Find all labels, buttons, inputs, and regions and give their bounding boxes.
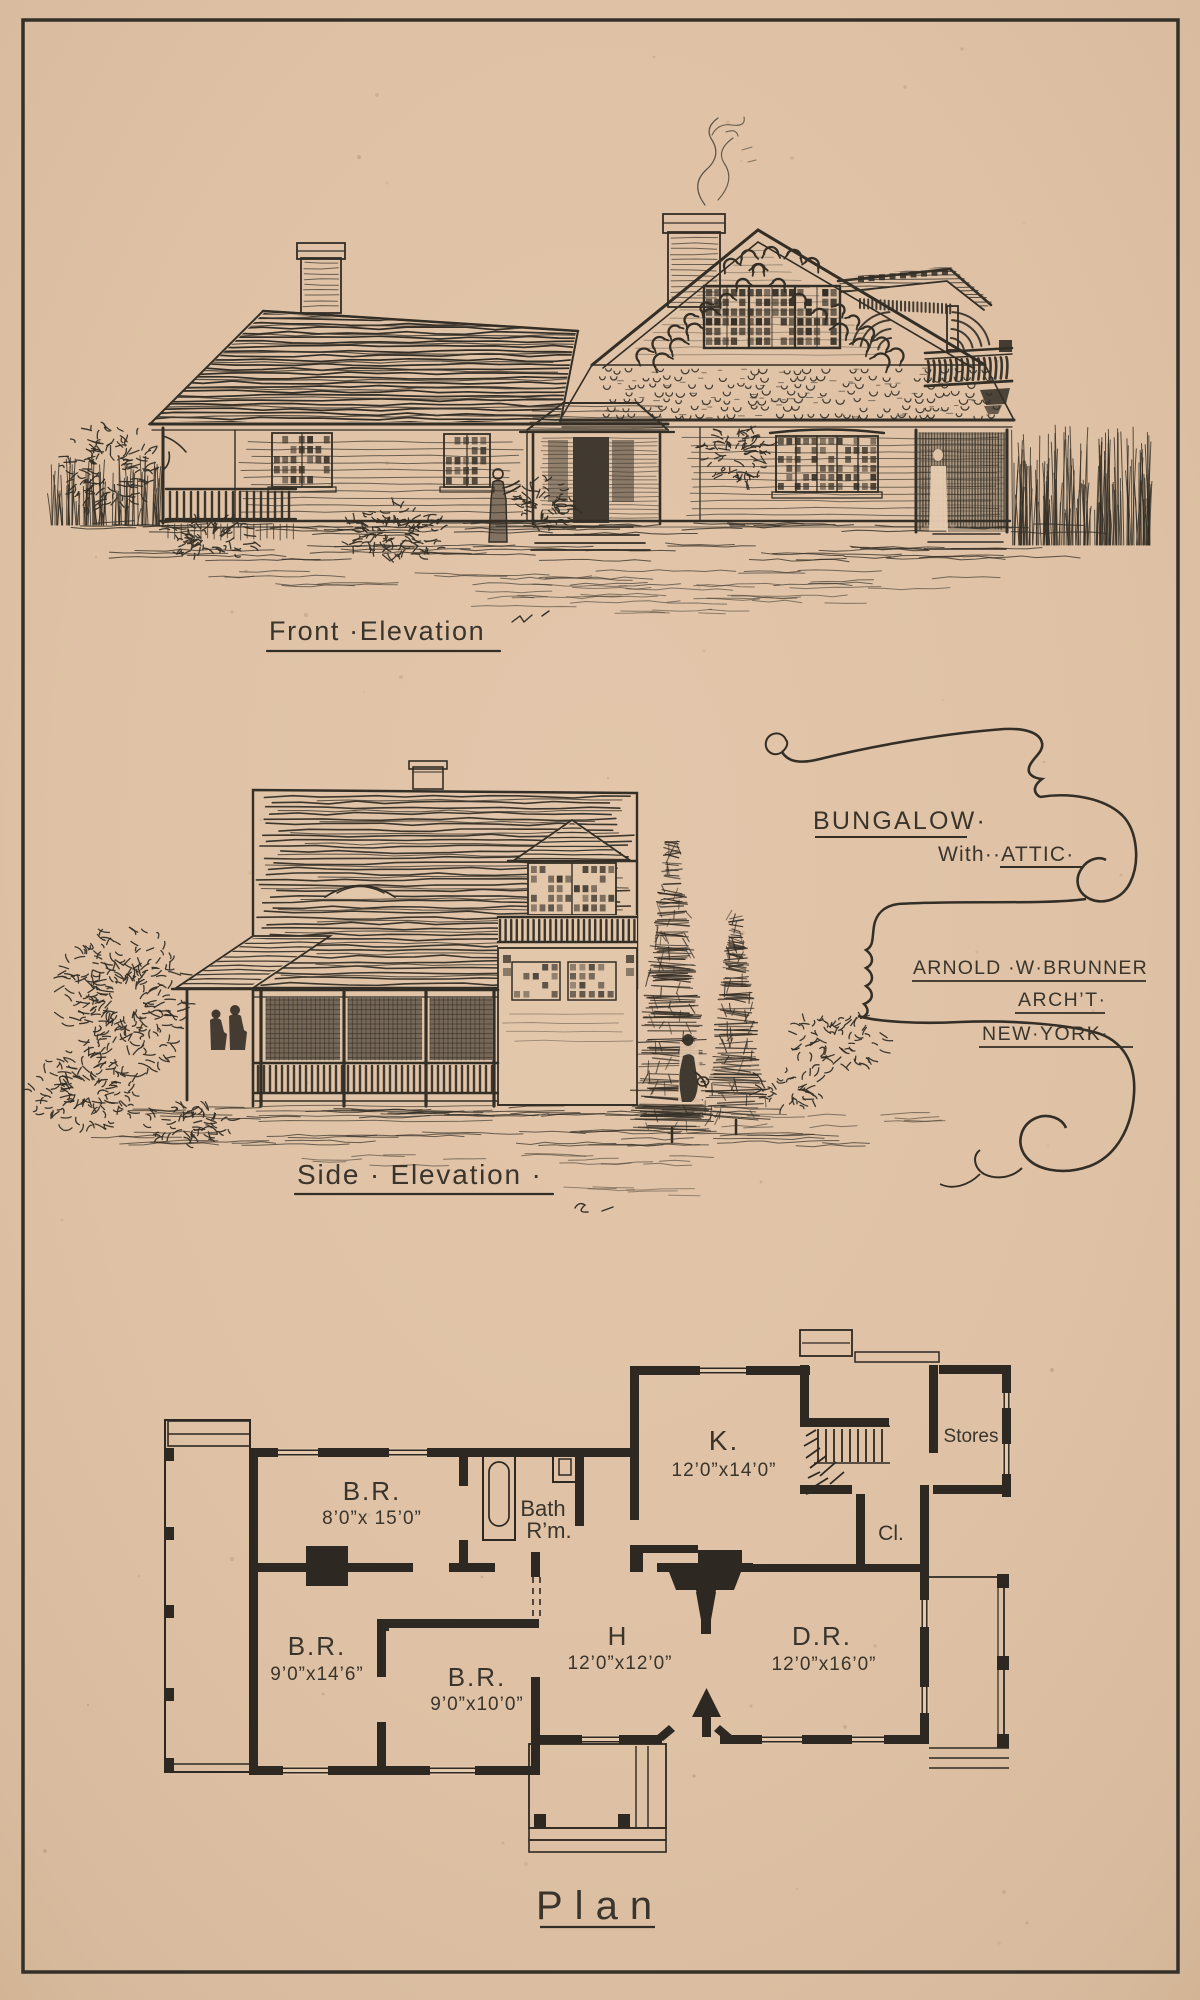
svg-text:ARCH’T·: ARCH’T· [1018,989,1107,1011]
svg-text:12’0”x14’0”: 12’0”x14’0” [672,1460,777,1481]
svg-text:Side · Elevation ·: Side · Elevation · [297,1159,543,1190]
svg-text:NEW·YORK·: NEW·YORK· [982,1023,1109,1045]
svg-text:B.R.: B.R. [448,1662,507,1692]
svg-text:R’m.: R’m. [526,1518,571,1543]
svg-text:D.R.: D.R. [792,1621,852,1651]
svg-text:Cl.: Cl. [878,1522,904,1545]
svg-text:With··ATTIC·: With··ATTIC· [938,843,1074,866]
svg-text:Front ·Elevation: Front ·Elevation [269,616,485,646]
svg-text:ARNOLD ·W·BRUNNER: ARNOLD ·W·BRUNNER [913,957,1148,979]
svg-text:9’0”x10’0”: 9’0”x10’0” [430,1694,523,1715]
svg-text:8’0”x 15’0”: 8’0”x 15’0” [322,1508,422,1529]
svg-text:12’0”x12’0”: 12’0”x12’0” [568,1653,673,1674]
svg-text:BUNGALOW·: BUNGALOW· [813,807,987,835]
svg-text:12’0”x16’0”: 12’0”x16’0” [772,1654,877,1675]
svg-text:Stores: Stores [944,1426,999,1447]
svg-text:Plan: Plan [536,1884,664,1928]
svg-text:B.R.: B.R. [343,1476,402,1506]
svg-text:9’0”x14’6”: 9’0”x14’6” [270,1664,363,1685]
svg-text:H: H [608,1621,629,1651]
svg-text:B.R.: B.R. [288,1631,347,1661]
svg-text:K.: K. [709,1425,739,1456]
